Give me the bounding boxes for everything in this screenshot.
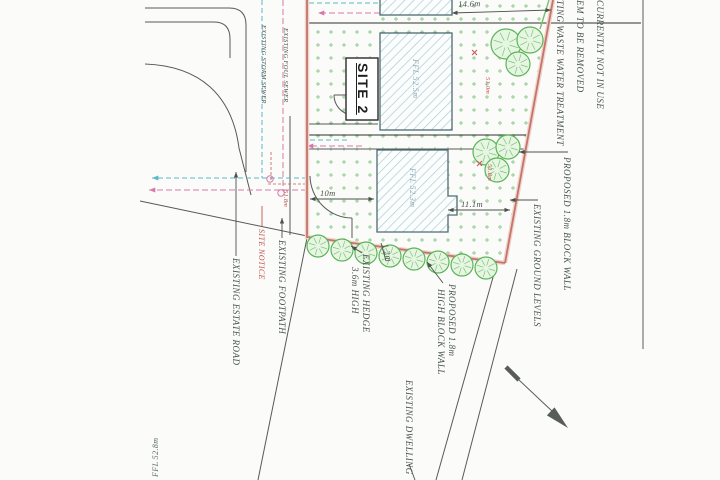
building-house-south bbox=[377, 150, 457, 232]
tree-symbol bbox=[451, 254, 473, 276]
label-existing-dwelling: EXISTING DWELLING bbox=[404, 380, 413, 475]
label-existing-hedge-line2: 3.6m HIGH bbox=[350, 267, 359, 314]
tree-symbol bbox=[403, 248, 425, 270]
site-plan-sheet: EXISTING STORM SEWER EXISTING FOUL SEWER… bbox=[0, 0, 720, 480]
label-existing-estate-road: EXISTING ESTATE ROAD bbox=[231, 258, 240, 366]
dim-11-1m: 11.1m bbox=[461, 200, 483, 209]
label-ffl-existing: FFL 52.8m bbox=[152, 438, 160, 477]
building-north-partial bbox=[380, 0, 452, 15]
label-proposed-wall-south-line2: HIGH BLOCK WALL bbox=[436, 289, 445, 375]
north-arrow bbox=[506, 367, 568, 428]
label-waste-water-note-line3: CURRENTLY NOT IN USE bbox=[595, 0, 604, 109]
spot-level-entrance: 51.8m bbox=[282, 190, 289, 207]
label-site-notice: SITE NOTICE bbox=[257, 229, 265, 280]
label-proposed-wall-east: PROPOSED 1.8m BLOCK WALL bbox=[562, 157, 571, 291]
label-site-2: SITE 2 bbox=[356, 63, 370, 115]
tree-symbol bbox=[331, 239, 353, 261]
tree-symbol bbox=[307, 235, 329, 257]
dim-14-6m: 14.6m bbox=[458, 0, 481, 8]
label-existing-hedge-line1: EXISTING HEDGE bbox=[361, 254, 370, 333]
tree-symbol bbox=[517, 27, 543, 53]
label-existing-storm-sewer: EXISTING STORM SEWER bbox=[260, 25, 267, 104]
tree-symbol bbox=[427, 251, 449, 273]
label-waste-water-note-line2: EM TO BE REMOVED bbox=[575, 0, 584, 93]
label-waste-water-note-line1: TING WASTE WATER TREATMENT bbox=[555, 0, 564, 146]
dim-10m: 10m bbox=[320, 189, 336, 198]
tree-symbol bbox=[475, 257, 497, 279]
tree-symbol bbox=[496, 135, 520, 159]
label-ffl-house-south: FFL 52.3m bbox=[408, 168, 416, 207]
label-proposed-wall-south-line1: PROPOSED 1.8m bbox=[447, 284, 456, 357]
label-ffl-house-north: FFL 52.5m bbox=[411, 59, 419, 98]
tree-symbol bbox=[506, 52, 530, 76]
spot-level-garden-south: 51.8m bbox=[486, 164, 493, 181]
label-existing-foul-sewer: EXISTING FOUL SEWER bbox=[282, 28, 289, 103]
label-existing-footpath: EXISTING FOOTPATH bbox=[277, 240, 286, 334]
spot-level-garden-north: 51.0m bbox=[484, 77, 491, 94]
label-existing-ground-levels: EXISTING GROUND LEVELS bbox=[532, 204, 541, 327]
